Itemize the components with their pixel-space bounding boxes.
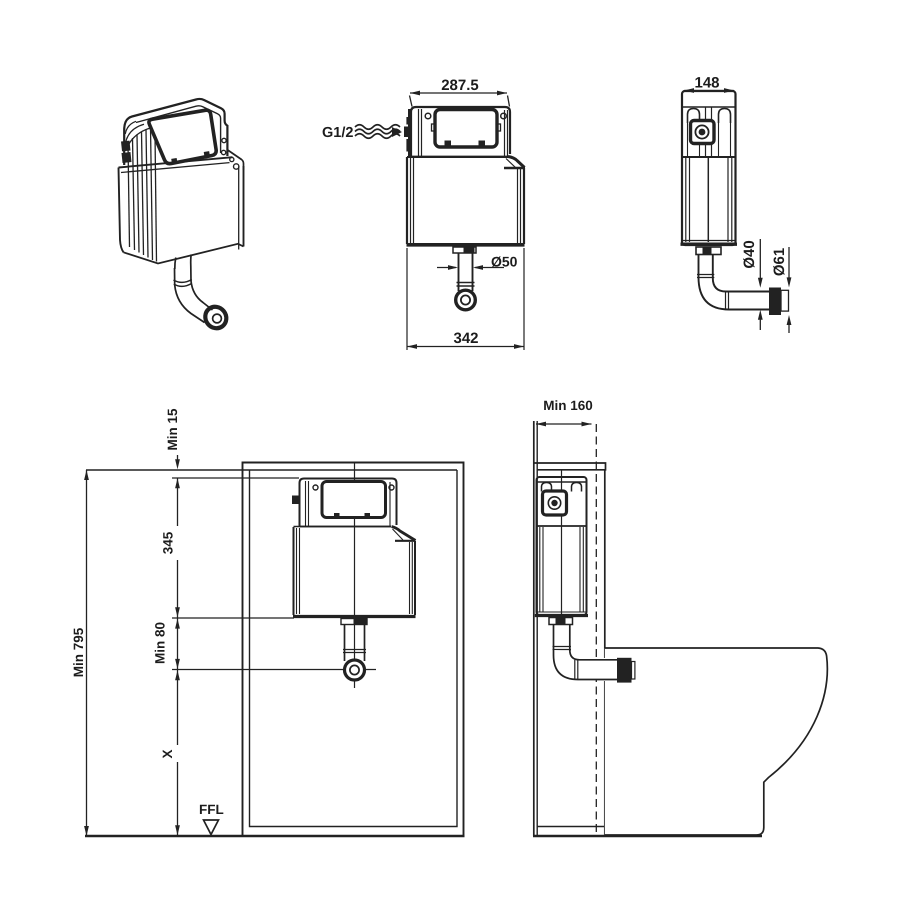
svg-text:Ø61: Ø61 <box>771 248 788 276</box>
svg-text:148: 148 <box>694 75 719 92</box>
svg-text:345: 345 <box>161 531 176 554</box>
svg-text:Min 80: Min 80 <box>153 622 168 664</box>
svg-text:Ø40: Ø40 <box>741 240 758 268</box>
svg-text:Ø50: Ø50 <box>491 254 518 270</box>
svg-text:Min 795: Min 795 <box>71 627 86 677</box>
svg-text:X: X <box>160 749 175 758</box>
svg-text:Min 15: Min 15 <box>165 408 180 451</box>
svg-text:Min 160: Min 160 <box>543 398 593 413</box>
svg-text:287.5: 287.5 <box>441 77 479 94</box>
svg-text:FFL: FFL <box>199 802 224 817</box>
svg-text:G1/2: G1/2 <box>322 125 353 141</box>
svg-text:342: 342 <box>453 330 478 347</box>
